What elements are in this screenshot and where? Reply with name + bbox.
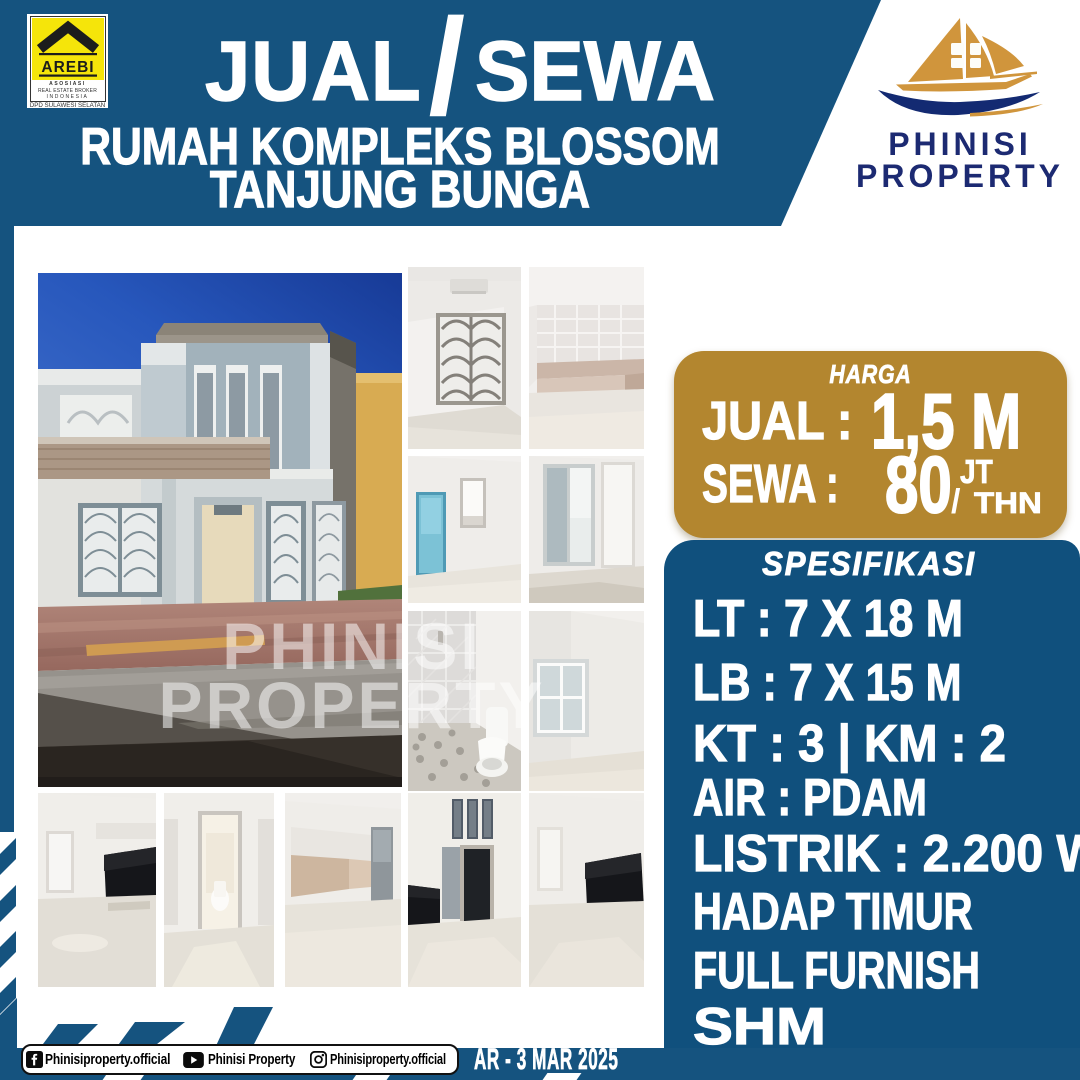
svg-text:AREBI: AREBI <box>41 59 94 76</box>
